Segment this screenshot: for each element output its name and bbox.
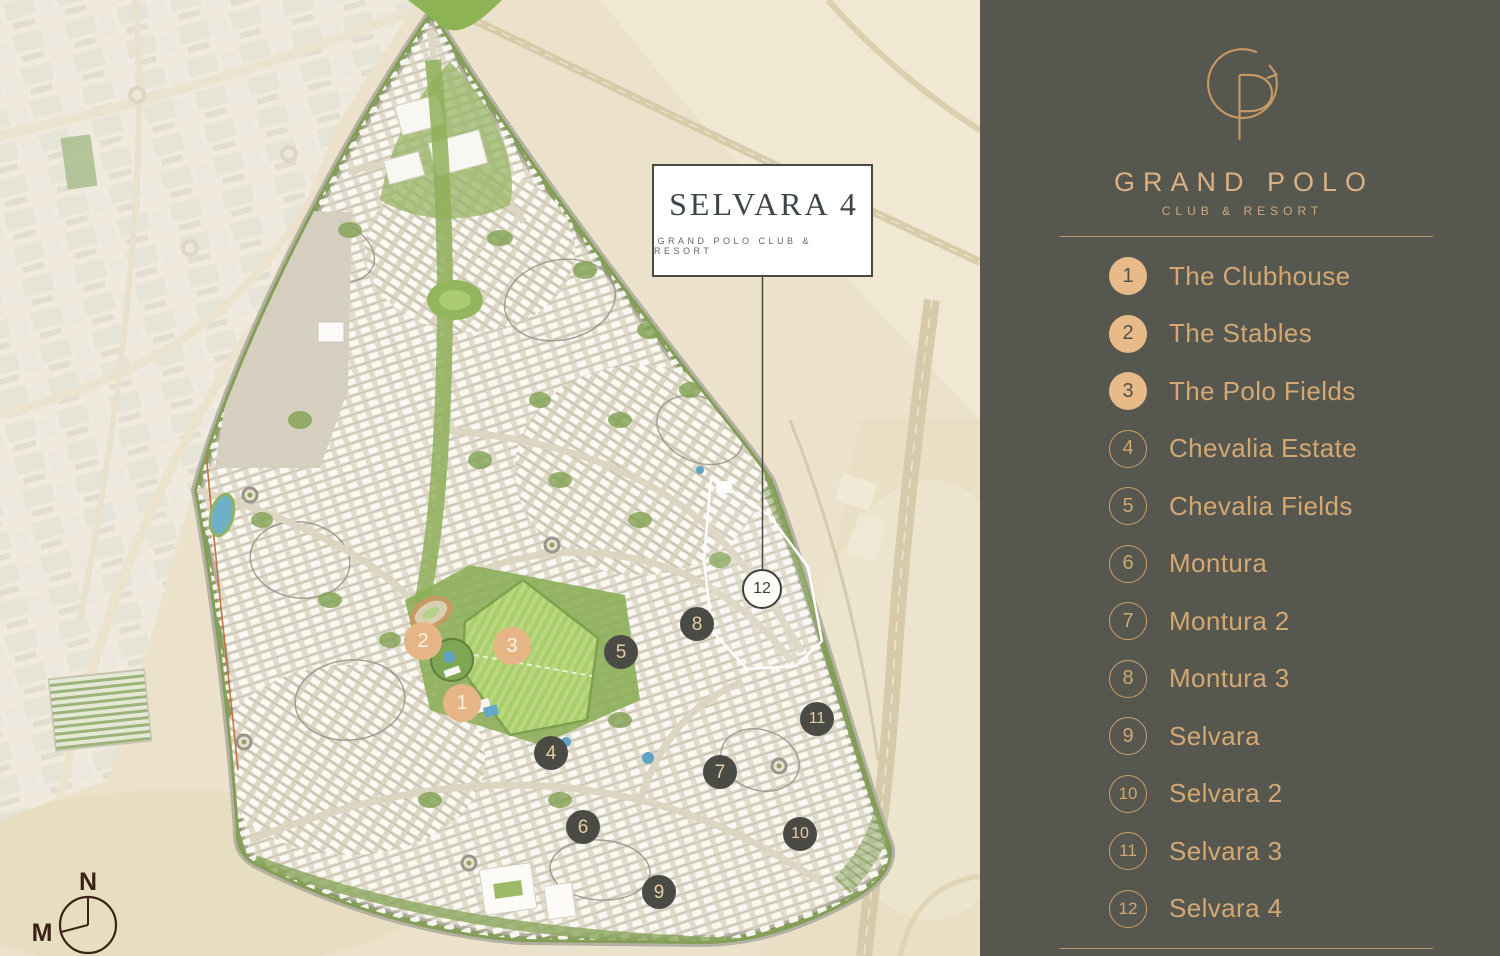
map-marker-2[interactable]: 2 <box>404 622 442 660</box>
legend-item-selvara-2[interactable]: 10 Selvara 2 <box>1109 775 1500 813</box>
legend-number-badge: 8 <box>1109 660 1147 698</box>
legend-item-the-clubhouse[interactable]: 1 The Clubhouse <box>1109 257 1500 295</box>
map-marker-8[interactable]: 8 <box>680 607 714 641</box>
legend-list: 1 The Clubhouse 2 The Stables 3 The Polo… <box>980 257 1500 947</box>
selvara4-sales-building <box>716 481 732 493</box>
legend-number-badge: 6 <box>1109 545 1147 583</box>
map-marker-6[interactable]: 6 <box>566 810 600 844</box>
legend-number-badge: 12 <box>1109 890 1147 928</box>
map-marker-9[interactable]: 9 <box>642 875 676 909</box>
legend-number-badge: 10 <box>1109 775 1147 813</box>
legend-item-montura-2[interactable]: 7 Montura 2 <box>1109 602 1500 640</box>
greenhouses <box>48 669 151 751</box>
brand-name: GRAND POLO <box>980 167 1500 198</box>
legend-item-selvara-3[interactable]: 11 Selvara 3 <box>1109 832 1500 870</box>
callout-title: SELVARA 4 <box>666 186 859 223</box>
brand-tagline: CLUB & RESORT <box>980 204 1500 218</box>
legend-item-the-stables[interactable]: 2 The Stables <box>1109 315 1500 353</box>
legend-item-chevalia-estate[interactable]: 4 Chevalia Estate <box>1109 430 1500 468</box>
legend-item-label: Chevalia Estate <box>1169 433 1357 464</box>
legend-sidebar: GRAND POLO CLUB & RESORT 1 The Clubhouse… <box>980 0 1500 956</box>
legend-item-label: Montura <box>1169 548 1267 579</box>
brand-monogram <box>1188 40 1293 148</box>
legend-item-label: The Clubhouse <box>1169 261 1351 292</box>
map-marker-12[interactable]: 12 <box>742 569 782 609</box>
map-marker-4[interactable]: 4 <box>534 736 568 770</box>
compass-north-label: N <box>79 868 97 896</box>
masterplan-map[interactable]: N M SELVARA 4 GRAND POLO CLUB & RESORT 1… <box>0 0 980 956</box>
legend-item-label: Selvara 2 <box>1169 778 1282 809</box>
grand-polo-masterplan: N M SELVARA 4 GRAND POLO CLUB & RESORT 1… <box>0 0 1500 956</box>
legend-item-label: Chevalia Fields <box>1169 491 1353 522</box>
map-marker-10[interactable]: 10 <box>783 817 817 851</box>
legend-number-badge: 7 <box>1109 602 1147 640</box>
legend-item-montura-3[interactable]: 8 Montura 3 <box>1109 660 1500 698</box>
map-marker-7[interactable]: 7 <box>703 755 737 789</box>
legend-number-badge: 11 <box>1109 832 1147 870</box>
selvara4-callout-card: SELVARA 4 GRAND POLO CLUB & RESORT <box>652 164 873 277</box>
map-marker-3[interactable]: 3 <box>493 627 531 665</box>
legend-item-label: Montura 2 <box>1169 606 1290 637</box>
legend-item-label: The Polo Fields <box>1169 376 1356 407</box>
legend-number-badge: 3 <box>1109 372 1147 410</box>
legend-item-selvara-4[interactable]: 12 Selvara 4 <box>1109 890 1500 928</box>
legend-number-badge: 1 <box>1109 257 1147 295</box>
legend-item-chevalia-fields[interactable]: 5 Chevalia Fields <box>1109 487 1500 525</box>
legend-number-badge: 2 <box>1109 315 1147 353</box>
divider-bottom <box>1060 948 1433 949</box>
map-marker-11[interactable]: 11 <box>800 702 834 736</box>
legend-item-label: Selvara 3 <box>1169 836 1282 867</box>
legend-number-badge: 5 <box>1109 487 1147 525</box>
legend-item-label: Selvara <box>1169 721 1260 752</box>
map-marker-1[interactable]: 1 <box>443 684 481 722</box>
map-artwork: N M <box>0 0 980 956</box>
legend-number-badge: 4 <box>1109 430 1147 468</box>
map-marker-5[interactable]: 5 <box>604 635 638 669</box>
legend-item-label: Montura 3 <box>1169 663 1290 694</box>
callout-subtitle: GRAND POLO CLUB & RESORT <box>654 236 871 256</box>
legend-item-montura[interactable]: 6 Montura <box>1109 545 1500 583</box>
brand-block: GRAND POLO CLUB & RESORT <box>980 40 1500 218</box>
legend-item-label: Selvara 4 <box>1169 893 1282 924</box>
legend-number-badge: 9 <box>1109 717 1147 755</box>
divider-top <box>1060 236 1433 237</box>
compass-m-label: M <box>32 919 53 947</box>
legend-item-the-polo-fields[interactable]: 3 The Polo Fields <box>1109 372 1500 410</box>
legend-item-label: The Stables <box>1169 318 1312 349</box>
legend-item-selvara[interactable]: 9 Selvara <box>1109 717 1500 755</box>
